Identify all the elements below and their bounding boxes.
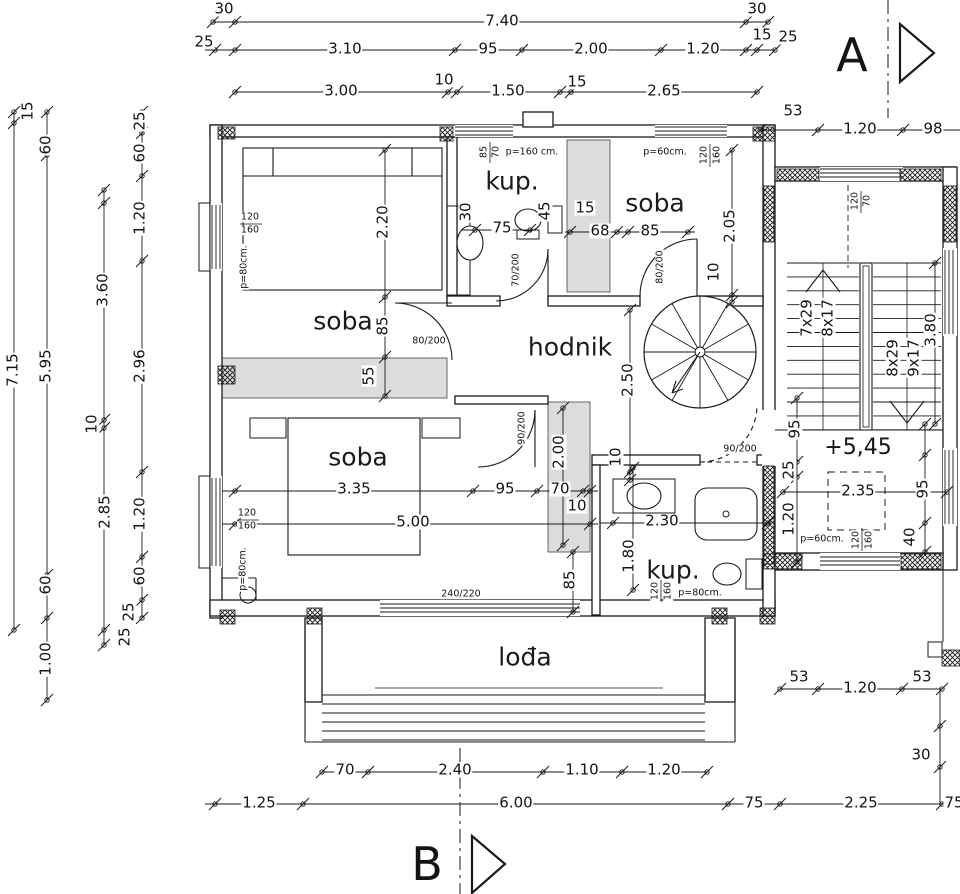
dim-label: 25 xyxy=(777,30,798,45)
note-label: p=160 cm. xyxy=(505,147,560,157)
dim-label: 15 xyxy=(751,28,772,43)
dim-label: 30 xyxy=(746,2,767,17)
shower-drain xyxy=(723,511,729,517)
dim-label: 9x17 xyxy=(907,338,922,378)
dim-label: 85 xyxy=(639,224,660,239)
note-label: 90/200 xyxy=(517,410,527,445)
dim-label: 7x29 xyxy=(800,298,815,338)
dim-label: 45 xyxy=(538,200,553,221)
note-label: 120 xyxy=(240,212,260,222)
dim-label: 8x17 xyxy=(821,298,836,338)
dim-label: 98 xyxy=(922,122,943,137)
dim-label: 1.20 xyxy=(133,496,148,531)
note-label: 70 xyxy=(491,145,501,159)
dim-label: 1.10 xyxy=(564,763,599,778)
note-label: 85 xyxy=(479,145,489,159)
dim-label: 85 xyxy=(563,569,578,590)
note-label: 160 xyxy=(237,521,257,531)
dim-label: 25 xyxy=(118,626,133,647)
dim-label: 1.20 xyxy=(842,122,877,137)
dim-label: 30 xyxy=(213,2,234,17)
dim-label: 10 xyxy=(566,499,587,514)
dim-label: 55 xyxy=(362,365,377,386)
dim-label: 3.35 xyxy=(336,482,371,497)
dim-label: 25 xyxy=(193,35,214,50)
room-label: soba xyxy=(313,309,373,334)
dim-label: 15 xyxy=(21,100,36,121)
sink xyxy=(627,483,661,509)
dim-label: 75 xyxy=(943,796,960,811)
sink xyxy=(457,226,483,260)
room-label: soba xyxy=(328,445,388,470)
note-label: 160 xyxy=(240,225,260,235)
dim-label: 3.10 xyxy=(327,42,362,57)
dim-label: 95 xyxy=(494,482,515,497)
note-label: 70 xyxy=(862,194,872,208)
note-label: 120 xyxy=(851,530,861,550)
dim-label: 2.40 xyxy=(437,763,472,778)
dim-label: 1.20 xyxy=(685,42,720,57)
note-label: 120 xyxy=(699,145,709,165)
dim-label: 1.20 xyxy=(782,501,797,536)
note-label: 160 xyxy=(864,530,874,550)
note-label: p=60cm. xyxy=(799,534,845,544)
dim-label: 60 xyxy=(133,565,148,586)
dim-label: 3.00 xyxy=(323,84,358,99)
dim-label: 60 xyxy=(39,134,54,155)
dim-label: 7.15 xyxy=(6,352,21,387)
dim-label: 30 xyxy=(459,201,474,222)
dim-label: 5.00 xyxy=(395,515,430,530)
dim-label: 75 xyxy=(491,221,512,236)
note-label: 90/200 xyxy=(722,444,757,454)
dim-label: 2.85 xyxy=(98,494,113,529)
toilet xyxy=(713,563,741,585)
dim-label: 1.20 xyxy=(133,200,148,235)
note-label: 240/220 xyxy=(440,589,481,599)
dim-label: 40 xyxy=(903,526,918,547)
dim-label: 25 xyxy=(133,110,148,131)
dim-label: 2.30 xyxy=(644,514,679,529)
marker-label: A xyxy=(835,32,868,78)
dim-label: 1.20 xyxy=(842,681,877,696)
dim-label: 53 xyxy=(911,670,932,685)
dim-label: 2.00 xyxy=(552,434,567,469)
note-label: p=80cm. xyxy=(239,244,249,290)
dim-label: 30 xyxy=(910,748,931,763)
dim-label: 1.00 xyxy=(39,641,54,676)
dim-label: 70 xyxy=(549,482,570,497)
note-label: p=80cm. xyxy=(677,588,723,598)
dim-label: 85 xyxy=(376,315,391,336)
dim-label: 1.20 xyxy=(646,763,681,778)
note-label: 80/200 xyxy=(411,336,446,346)
dim-label: 2.50 xyxy=(621,362,636,397)
dim-label: 2.65 xyxy=(646,84,681,99)
dim-label: 2.00 xyxy=(573,42,608,57)
dim-label: 25 xyxy=(782,459,797,480)
dim-label: 70 xyxy=(334,763,355,778)
room-label: kup. xyxy=(646,558,699,583)
note-label: p=80cm. xyxy=(238,546,248,592)
dim-label: 1.25 xyxy=(241,796,276,811)
dim-label: 8x29 xyxy=(886,338,901,378)
room-label: soba xyxy=(625,191,685,216)
note-label: 70/200 xyxy=(511,252,521,287)
dim-label: 95 xyxy=(477,42,498,57)
level-label: +5,45 xyxy=(823,437,892,459)
dim-label: 60 xyxy=(133,142,148,163)
floorplan-linework xyxy=(0,0,960,894)
note-label: 160 xyxy=(712,145,722,165)
dim-label: 53 xyxy=(782,104,803,119)
floorplan-page: 307.4030253.10952.001.2015253.00101.5015… xyxy=(0,0,960,894)
dim-label: 95 xyxy=(788,418,803,439)
dim-label: 2.05 xyxy=(723,208,738,243)
dim-label: 2.20 xyxy=(376,204,391,239)
dim-label: 68 xyxy=(589,224,610,239)
dim-label: 25 xyxy=(122,601,137,622)
note-label: 120 xyxy=(850,191,860,211)
note-label: 80/200 xyxy=(655,249,665,284)
dim-label: 3.80 xyxy=(924,312,939,347)
dim-label: 2.35 xyxy=(840,484,875,499)
dim-label: 5.95 xyxy=(39,348,54,383)
room-label: lođa xyxy=(498,645,551,670)
dim-label: 75 xyxy=(743,796,764,811)
dim-label: 10 xyxy=(433,73,454,88)
dim-label: 53 xyxy=(788,670,809,685)
dim-label: 10 xyxy=(707,261,722,282)
note-label: 120 xyxy=(237,508,257,518)
dim-label: 3.60 xyxy=(96,272,111,307)
dim-label: 7.40 xyxy=(484,14,519,29)
note-label: p=60cm. xyxy=(642,147,688,157)
dim-label: 2.96 xyxy=(133,348,148,383)
dim-label: 6.00 xyxy=(498,796,533,811)
dim-label: 10 xyxy=(609,446,624,467)
dim-label: 1.80 xyxy=(622,538,637,573)
dim-label: 10 xyxy=(85,413,100,434)
room-label: kup. xyxy=(485,169,538,194)
dim-label: 15 xyxy=(574,201,595,216)
room-label: hodnik xyxy=(528,335,612,360)
marker-label: B xyxy=(410,841,444,887)
dim-label: 95 xyxy=(916,478,931,499)
dim-label: 1.50 xyxy=(490,84,525,99)
dim-label: 2.25 xyxy=(843,796,878,811)
dim-label: 60 xyxy=(39,574,54,595)
dim-label: 15 xyxy=(566,75,587,90)
